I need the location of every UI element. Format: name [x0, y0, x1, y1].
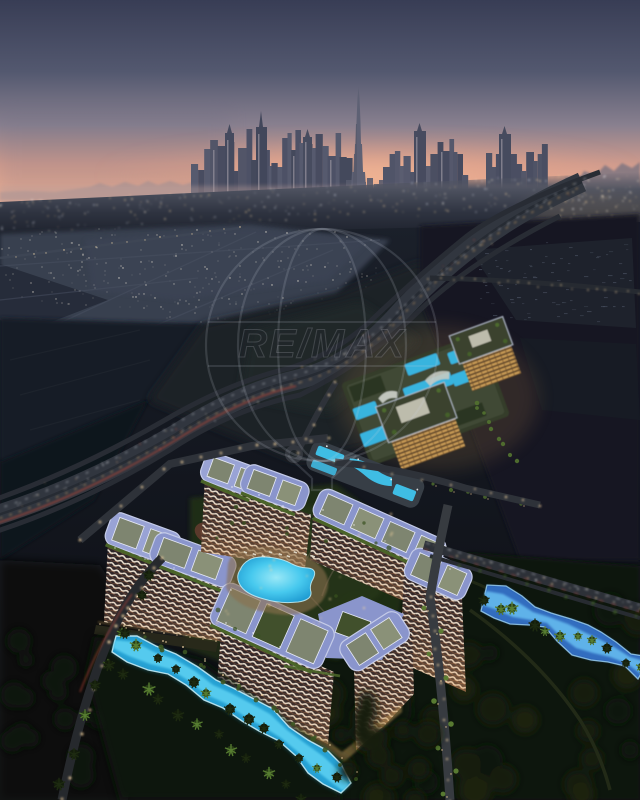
svg-text:RE/MAX: RE/MAX — [238, 322, 406, 366]
